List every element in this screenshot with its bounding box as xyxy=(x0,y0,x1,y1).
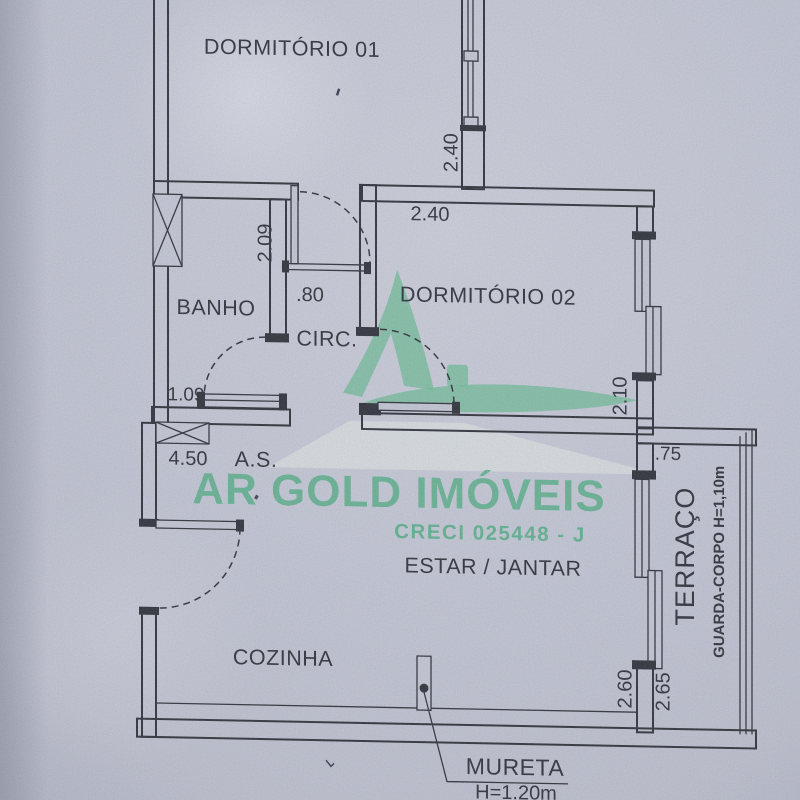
floor-plan-svg: DORMITÓRIO 01 2.40 2.40 2.09 .80 BANHO C… xyxy=(0,0,800,800)
paper-grain-light xyxy=(0,0,800,800)
floor-plan-photo: DORMITÓRIO 01 2.40 2.40 2.09 .80 BANHO C… xyxy=(0,0,800,800)
